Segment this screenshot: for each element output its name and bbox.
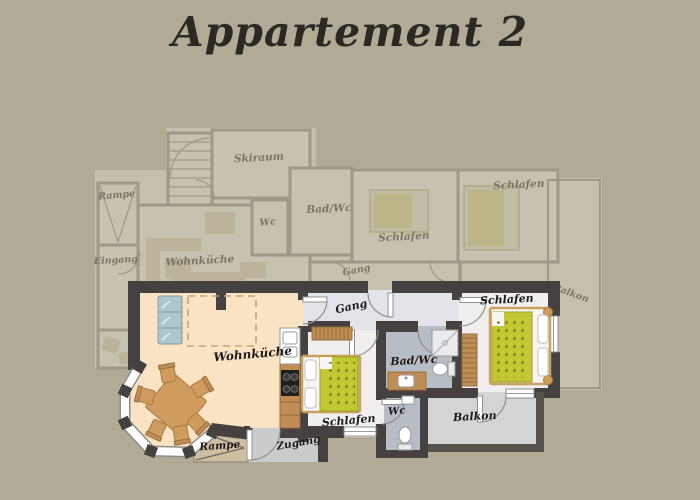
- floorplan-canvas: Skiraum Rampe Eingang Wohnküche Wc Bad/W…: [0, 0, 700, 500]
- bg-room-label-bad: Bad/Wc: [305, 202, 352, 216]
- bathroom-sink-icon: [388, 372, 426, 390]
- door-icon: [247, 430, 252, 460]
- foreground-plan: Wohnküche Schlafen Gang Bad/Wc Wc Schlaf…: [118, 281, 560, 462]
- room-label-bad-wc: Bad/Wc: [389, 353, 438, 369]
- bed-icon: [302, 356, 360, 412]
- bed-icon: [490, 308, 553, 385]
- bg-room-label-wc: Wc: [259, 216, 277, 228]
- sofa-icon: [158, 296, 182, 344]
- wardrobe-icon: [312, 327, 352, 340]
- stairs-icon: [168, 133, 212, 215]
- door-icon: [303, 297, 327, 302]
- room-label-wc: Wc: [388, 405, 406, 417]
- toilet-icon: [398, 427, 412, 450]
- door-icon: [388, 293, 393, 317]
- room-label-balkon: Balkon: [452, 409, 497, 424]
- floorplan-page: Appartement 2: [0, 0, 700, 500]
- wardrobe-icon: [462, 334, 477, 386]
- door-icon: [382, 400, 404, 405]
- wc-sink-icon: [402, 396, 414, 404]
